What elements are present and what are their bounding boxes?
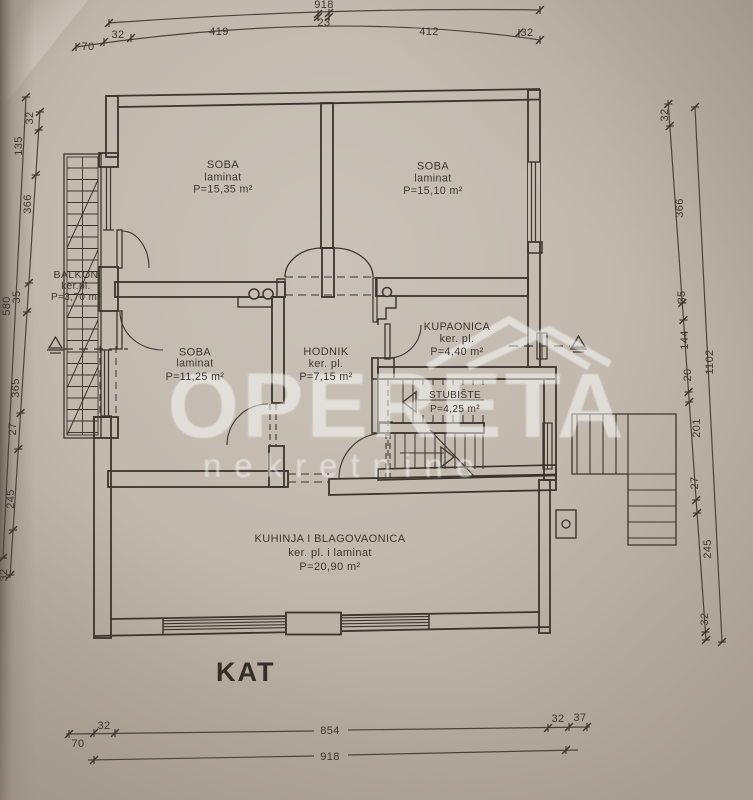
svg-text:32: 32 [97, 720, 110, 732]
svg-text:144: 144 [679, 330, 691, 350]
svg-text:32: 32 [520, 27, 533, 39]
svg-text:32: 32 [24, 111, 36, 124]
svg-text:P=4,25 m²: P=4,25 m² [430, 404, 480, 415]
svg-text:laminat: laminat [414, 173, 451, 185]
svg-text:918: 918 [320, 751, 340, 763]
svg-text:366: 366 [674, 198, 686, 218]
svg-text:35: 35 [676, 290, 688, 303]
svg-text:32: 32 [111, 29, 124, 41]
svg-text:245: 245 [702, 539, 714, 559]
svg-text:P=4,40 m²: P=4,40 m² [430, 346, 483, 358]
svg-text:32: 32 [659, 108, 671, 121]
svg-text:P=3,70 m²: P=3,70 m² [51, 292, 101, 303]
svg-text:SOBA: SOBA [207, 159, 239, 171]
svg-text:70: 70 [81, 41, 94, 53]
svg-text:1102: 1102 [704, 349, 716, 374]
svg-text:ker. pl. i laminat: ker. pl. i laminat [288, 547, 372, 559]
svg-text:ker.pl.: ker.pl. [61, 281, 90, 292]
svg-text:OPERETA: OPERETA [168, 355, 627, 457]
svg-text:KAT: KAT [216, 657, 276, 687]
svg-text:P=15,35 m²: P=15,35 m² [193, 184, 253, 196]
svg-text:laminat: laminat [176, 358, 213, 370]
svg-text:P=20,90 m²: P=20,90 m² [299, 561, 360, 573]
svg-text:32: 32 [0, 568, 10, 581]
svg-text:P=11,25 m²: P=11,25 m² [166, 371, 225, 383]
svg-text:20: 20 [682, 368, 694, 381]
svg-text:P=7,15 m²: P=7,15 m² [299, 371, 352, 383]
svg-text:412: 412 [419, 26, 439, 38]
svg-text:SOBA: SOBA [417, 161, 449, 173]
svg-text:32: 32 [699, 612, 711, 625]
svg-text:201: 201 [691, 418, 703, 438]
svg-text:419: 419 [209, 26, 229, 38]
svg-text:27: 27 [689, 476, 701, 489]
svg-text:KUHINJA I BLAGOVAONICA: KUHINJA I BLAGOVAONICA [254, 533, 405, 545]
svg-text:366: 366 [22, 194, 34, 214]
svg-text:HODNIK: HODNIK [303, 346, 348, 358]
svg-text:BALKON: BALKON [54, 269, 99, 281]
svg-text:ker. pl.: ker. pl. [309, 358, 344, 370]
svg-text:STUBIŠTE: STUBIŠTE [429, 388, 481, 401]
svg-text:laminat: laminat [204, 172, 241, 184]
svg-text:245: 245 [5, 489, 17, 509]
svg-text:32: 32 [551, 713, 564, 725]
svg-text:918: 918 [314, 0, 334, 11]
svg-text:70: 70 [71, 738, 84, 750]
svg-text:37: 37 [573, 712, 586, 724]
svg-text:135: 135 [13, 136, 25, 156]
svg-text:854: 854 [320, 725, 340, 737]
svg-text:35: 35 [11, 290, 23, 303]
svg-text:nekretnine: nekretnine [203, 447, 487, 484]
svg-text:27: 27 [7, 422, 19, 435]
svg-text:ker. pl.: ker. pl. [440, 333, 475, 345]
svg-text:KUPAONICA: KUPAONICA [424, 321, 491, 333]
svg-text:365: 365 [10, 378, 22, 398]
svg-text:P=15,10 m²: P=15,10 m² [403, 185, 463, 197]
